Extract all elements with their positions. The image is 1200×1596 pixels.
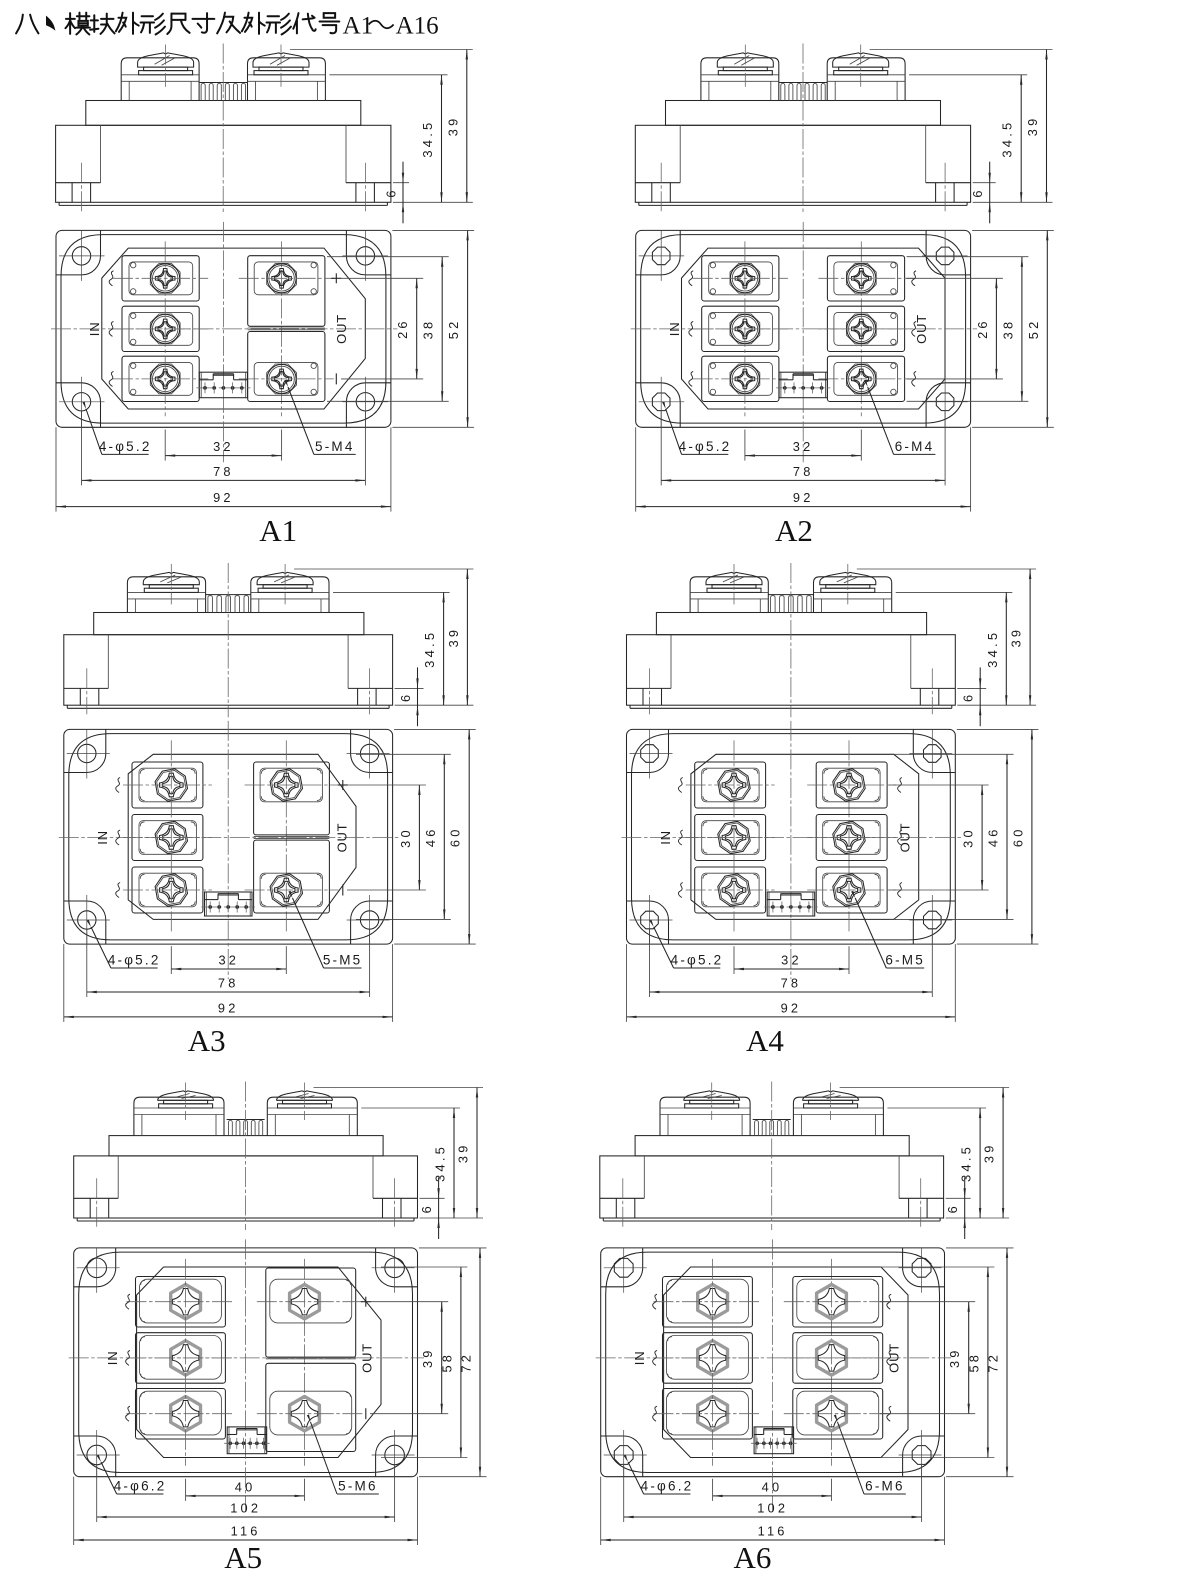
svg-text:60: 60	[448, 826, 463, 847]
svg-text:OUT: OUT	[914, 314, 929, 344]
svg-text:A2: A2	[775, 513, 813, 548]
svg-text:78: 78	[793, 464, 814, 479]
svg-text:A1: A1	[343, 13, 374, 40]
svg-text:92: 92	[218, 1000, 239, 1015]
svg-text:4-φ6.2: 4-φ6.2	[114, 1479, 167, 1494]
svg-text:39: 39	[1009, 627, 1024, 648]
svg-text:78: 78	[781, 976, 802, 991]
svg-text:32: 32	[213, 439, 234, 454]
svg-text:6: 6	[384, 187, 399, 197]
svg-text:39: 39	[456, 1142, 471, 1163]
svg-text:34.5: 34.5	[959, 1144, 974, 1182]
svg-text:60: 60	[1010, 826, 1025, 847]
svg-text:30: 30	[398, 827, 413, 848]
svg-text:A5: A5	[224, 1540, 262, 1575]
svg-text:IN: IN	[658, 830, 673, 845]
svg-text:92: 92	[793, 490, 814, 505]
svg-text:46: 46	[423, 826, 438, 847]
svg-text:5-M6: 5-M6	[338, 1479, 378, 1494]
svg-text:IN: IN	[667, 322, 682, 337]
svg-text:92: 92	[213, 490, 234, 505]
svg-text:4-φ5.2: 4-φ5.2	[108, 953, 161, 968]
svg-text:34.5: 34.5	[433, 1144, 448, 1182]
svg-text:A1: A1	[259, 513, 297, 548]
svg-text:6-M5: 6-M5	[885, 953, 925, 968]
svg-text:5-M5: 5-M5	[323, 953, 363, 968]
svg-text:OUT: OUT	[334, 314, 349, 344]
svg-text:4-φ5.2: 4-φ5.2	[671, 953, 724, 968]
svg-text:5-M4: 5-M4	[315, 439, 355, 454]
svg-text:4-φ5.2: 4-φ5.2	[99, 439, 152, 454]
svg-text:40: 40	[762, 1479, 783, 1494]
svg-text:6: 6	[398, 692, 413, 702]
svg-text:52: 52	[446, 319, 461, 340]
svg-text:39: 39	[982, 1142, 997, 1163]
svg-text:32: 32	[781, 953, 802, 968]
svg-text:IN: IN	[632, 1351, 647, 1366]
svg-text:102: 102	[757, 1501, 788, 1516]
svg-text:OUT: OUT	[897, 823, 912, 853]
svg-text:OUT: OUT	[360, 1343, 375, 1373]
svg-text:34.5: 34.5	[422, 630, 437, 668]
svg-text:OUT: OUT	[335, 823, 350, 853]
svg-text:38: 38	[1000, 319, 1015, 340]
svg-text:34.5: 34.5	[1000, 120, 1015, 158]
svg-text:78: 78	[213, 464, 234, 479]
svg-text:IN: IN	[95, 830, 110, 845]
svg-text:A4: A4	[746, 1023, 784, 1058]
svg-text:6-M6: 6-M6	[865, 1479, 905, 1494]
svg-text:30: 30	[961, 827, 976, 848]
svg-text:4-φ6.2: 4-φ6.2	[641, 1479, 694, 1494]
svg-text:92: 92	[781, 1000, 802, 1015]
svg-text:6: 6	[945, 1203, 960, 1213]
svg-text:39: 39	[420, 1347, 435, 1368]
svg-text:32: 32	[218, 953, 239, 968]
svg-text:38: 38	[421, 319, 436, 340]
svg-text:6: 6	[970, 187, 985, 197]
svg-text:102: 102	[230, 1501, 261, 1516]
svg-text:116: 116	[758, 1524, 788, 1539]
svg-text:116: 116	[231, 1524, 261, 1539]
svg-text:46: 46	[986, 826, 1001, 847]
svg-text:A6: A6	[734, 1540, 772, 1575]
svg-text:39: 39	[446, 627, 461, 648]
svg-text:A16: A16	[396, 13, 439, 40]
svg-text:A3: A3	[188, 1023, 226, 1058]
svg-text:34.5: 34.5	[985, 630, 1000, 668]
svg-text:6-M4: 6-M4	[895, 439, 935, 454]
svg-text:32: 32	[793, 439, 814, 454]
svg-text:IN: IN	[87, 322, 102, 337]
svg-text:72: 72	[459, 1352, 474, 1373]
svg-text:39: 39	[947, 1347, 962, 1368]
svg-text:78: 78	[218, 976, 239, 991]
svg-text:40: 40	[235, 1479, 256, 1494]
svg-text:26: 26	[975, 318, 990, 339]
svg-text:39: 39	[445, 116, 460, 137]
svg-text:6: 6	[961, 692, 976, 702]
svg-text:OUT: OUT	[887, 1343, 902, 1373]
svg-text:26: 26	[395, 318, 410, 339]
svg-text:34.5: 34.5	[420, 120, 435, 158]
svg-text:52: 52	[1026, 319, 1041, 340]
svg-text:4-φ5.2: 4-φ5.2	[679, 439, 732, 454]
svg-text:72: 72	[986, 1352, 1001, 1373]
svg-text:6: 6	[419, 1203, 434, 1213]
svg-text:39: 39	[1025, 116, 1040, 137]
svg-text:58: 58	[439, 1352, 454, 1373]
svg-text:IN: IN	[105, 1351, 120, 1366]
svg-text:58: 58	[966, 1352, 981, 1373]
